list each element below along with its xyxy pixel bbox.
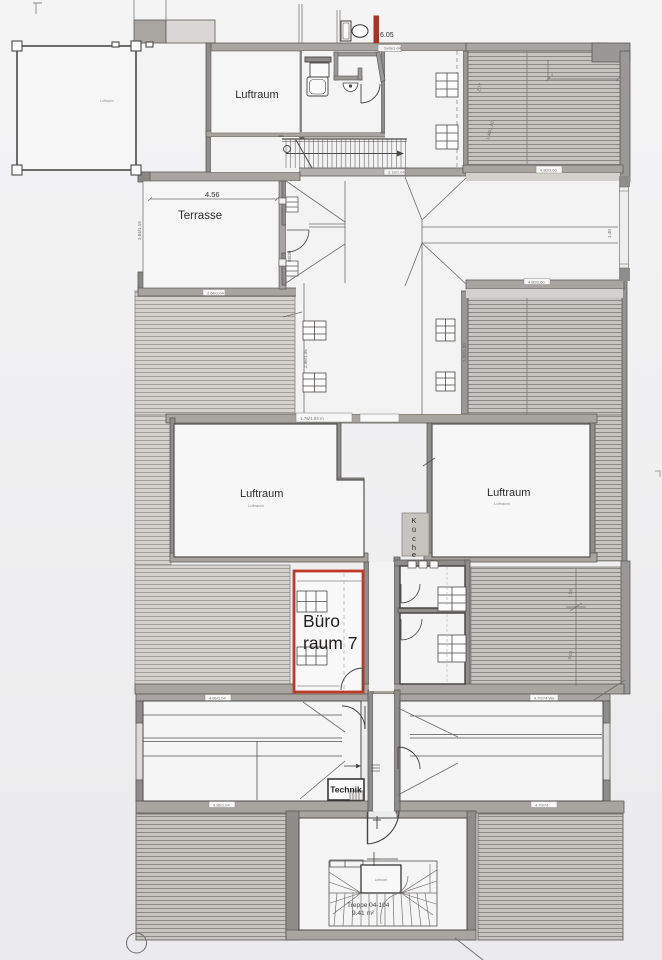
svg-text:Treppe 04-104: Treppe 04-104 <box>347 902 390 909</box>
svg-text:3.84/1.19: 3.84/1.19 <box>137 221 142 240</box>
svg-text:ü: ü <box>412 525 416 534</box>
svg-text:4.70/74 Wa: 4.70/74 Wa <box>534 696 555 701</box>
svg-text:9.41 m²: 9.41 m² <box>352 910 375 917</box>
svg-text:4.56: 4.56 <box>205 190 220 199</box>
svg-text:Luftraum: Luftraum <box>248 503 264 508</box>
svg-text:2.96/1.35: 2.96/1.35 <box>303 349 308 368</box>
svg-text:3.18/1.04: 3.18/1.04 <box>388 170 405 175</box>
svg-text:86/30: 86/30 <box>287 250 292 262</box>
svg-text:4.70/74: 4.70/74 <box>535 803 549 808</box>
svg-text:2.64/1.04: 2.64/1.04 <box>207 291 224 296</box>
svg-text:Büro: Büro <box>303 611 340 631</box>
svg-text:4.80/2.60: 4.80/2.60 <box>528 280 545 285</box>
svg-text:Luftraum: Luftraum <box>240 488 283 500</box>
svg-text:6.05: 6.05 <box>380 32 394 39</box>
svg-text:1.36/1.20: 1.36/1.20 <box>462 343 467 362</box>
svg-text:Luftraum: Luftraum <box>487 487 530 499</box>
svg-text:1.76/1.04 m: 1.76/1.04 m <box>300 416 324 421</box>
svg-text:Seite1-04: Seite1-04 <box>384 46 402 51</box>
svg-text:raum 7: raum 7 <box>303 633 357 653</box>
svg-text:4.86/1.04: 4.86/1.04 <box>209 696 226 701</box>
svg-text:Luftraum: Luftraum <box>235 89 278 101</box>
svg-text:4.86/1.04: 4.86/1.04 <box>213 803 230 808</box>
svg-text:K: K <box>411 516 416 525</box>
svg-text:Technik: Technik <box>330 785 362 795</box>
svg-text:Luftraum: Luftraum <box>375 878 388 882</box>
svg-text:4.80/3.60: 4.80/3.60 <box>540 168 557 173</box>
svg-text:Luftraum: Luftraum <box>494 501 510 506</box>
svg-text:Luftraum: Luftraum <box>100 99 114 103</box>
svg-text:Terrasse: Terrasse <box>178 210 222 222</box>
svg-text:1.40: 1.40 <box>607 229 612 238</box>
svg-text:e: e <box>412 550 416 559</box>
svg-text:c: c <box>412 534 416 543</box>
